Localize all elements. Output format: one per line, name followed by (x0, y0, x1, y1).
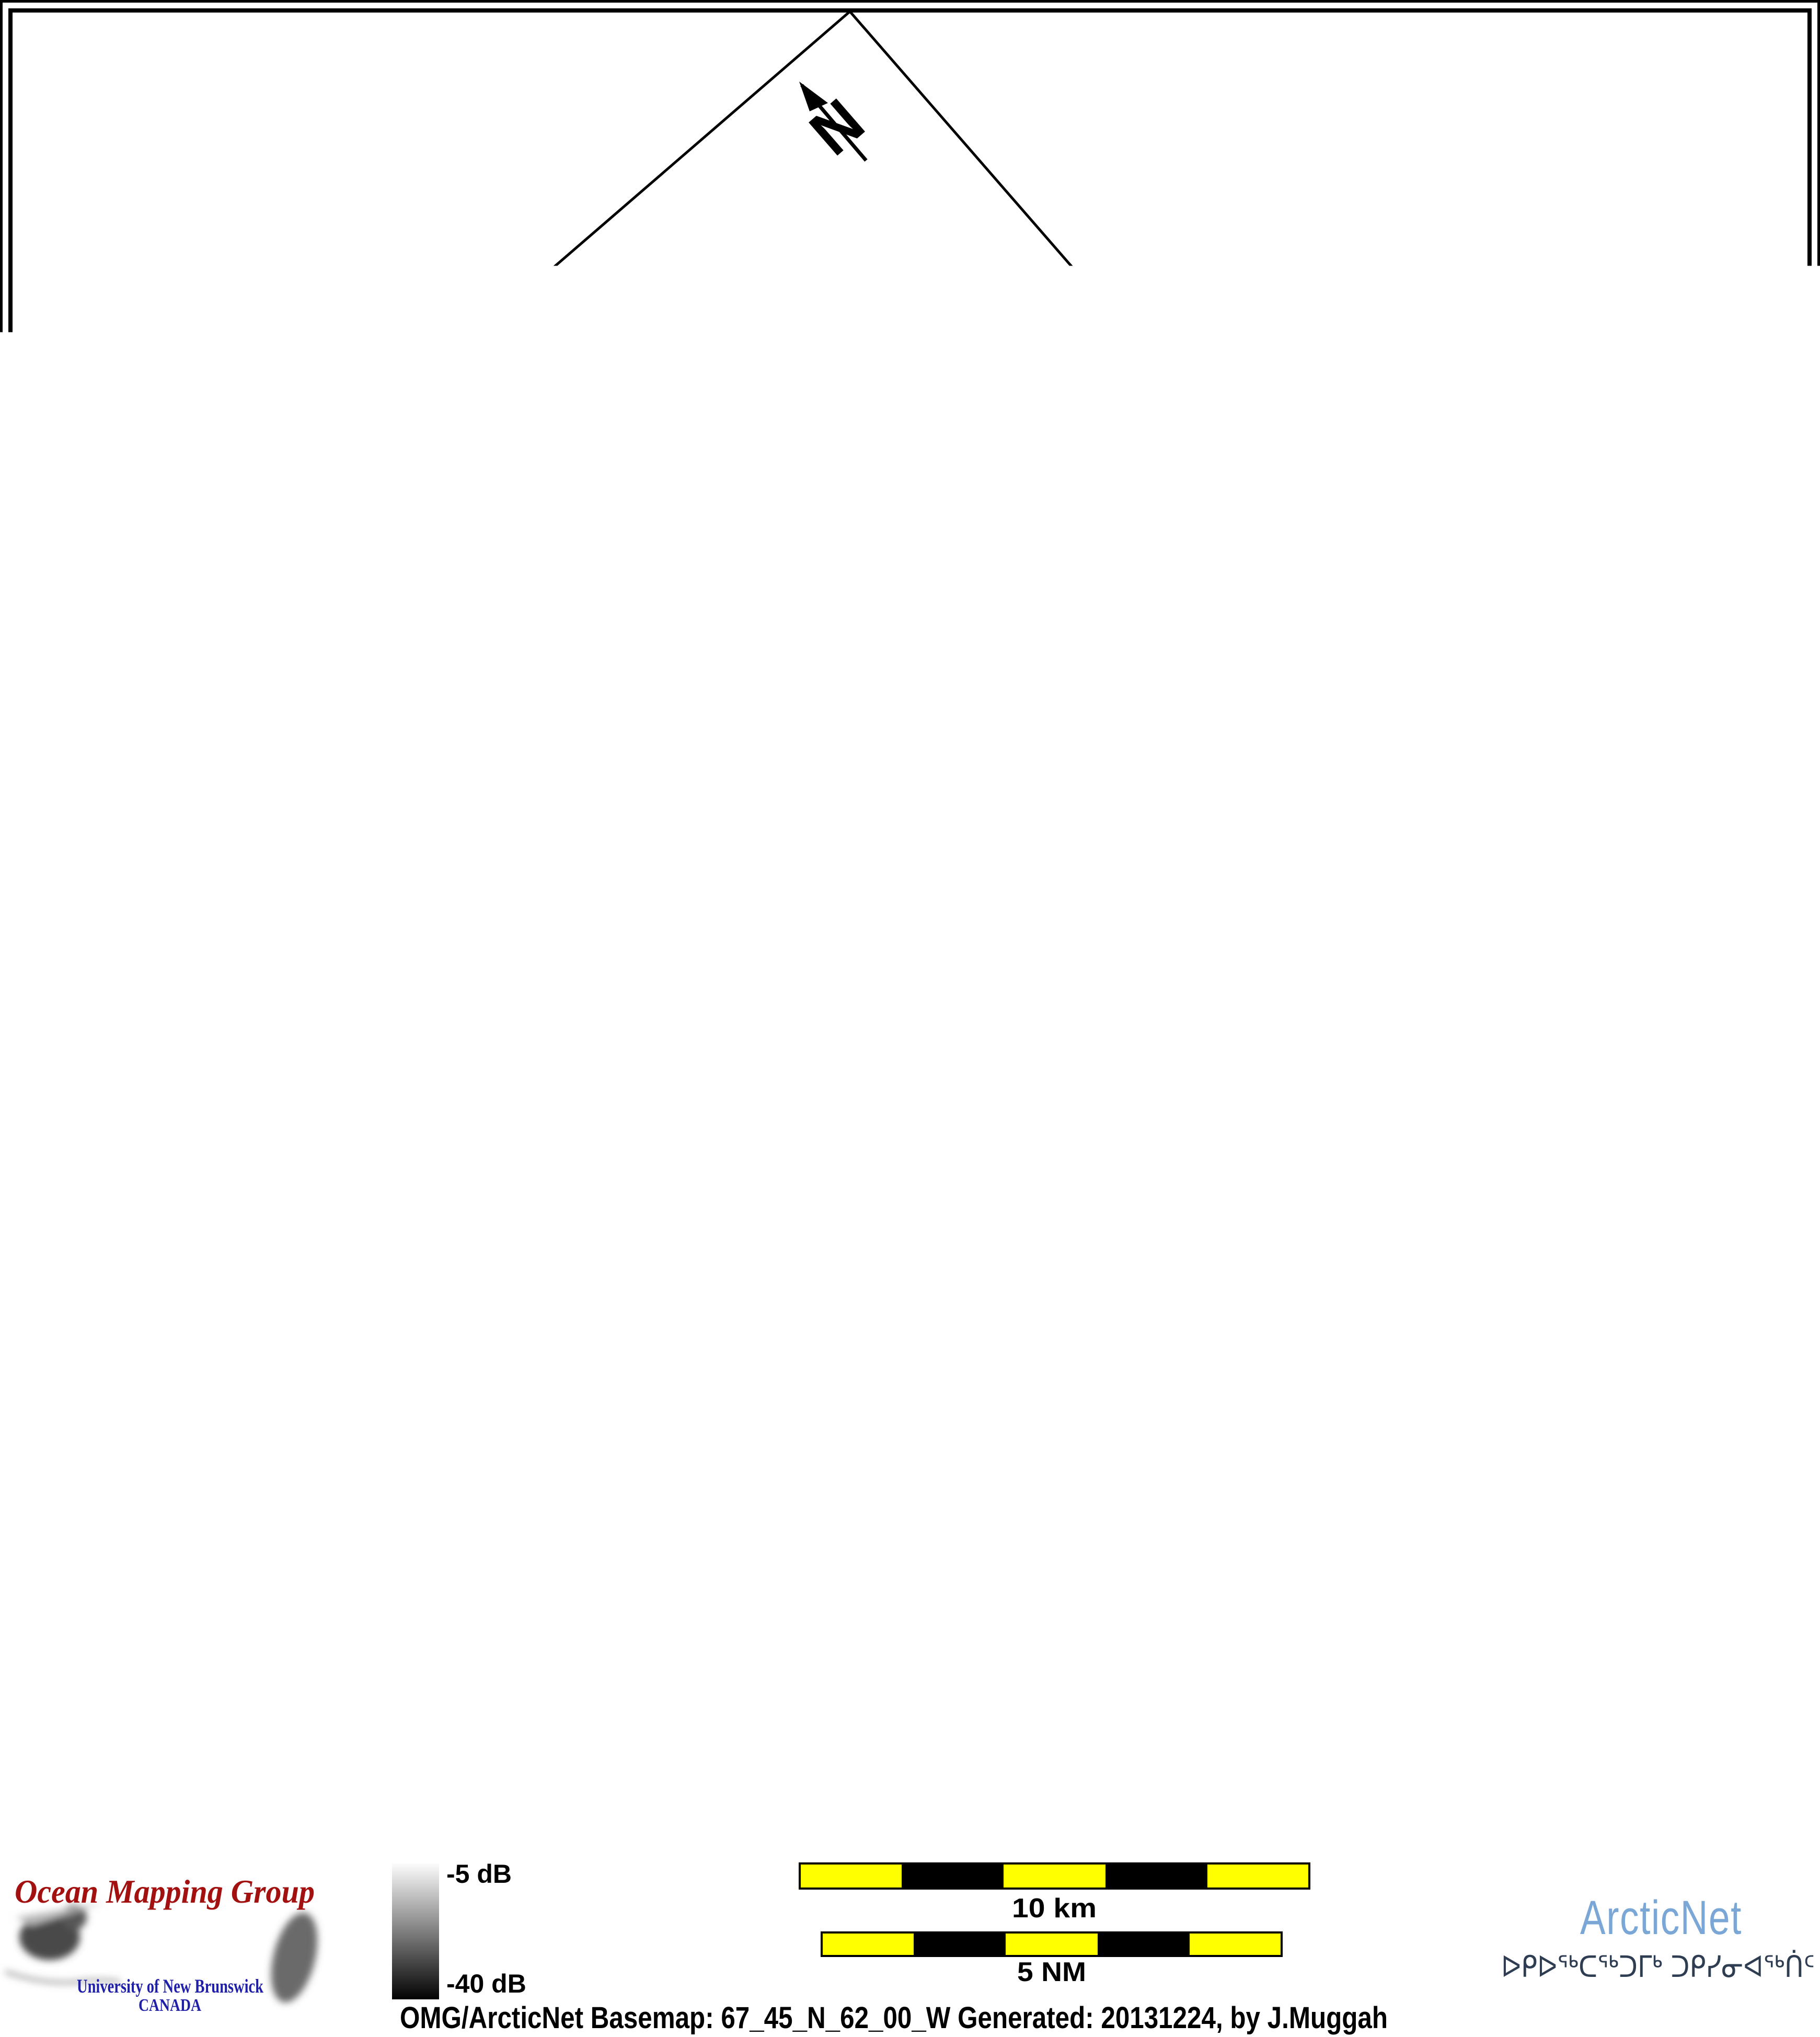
basemap-caption: OMG/ArcticNet Basemap: 67_45_N_62_00_W G… (400, 2001, 1388, 2035)
scalebar-segment (1004, 1863, 1105, 1889)
scalebar-segment (914, 1932, 1006, 1956)
legend-separator (3, 1856, 1817, 1860)
arcticnet-syllabics: ᐅᑭᐅᖅᑕᖅᑐᒥᒃ ᑐᑭᓯᓂᐊᖅᑏᑦ (1501, 1950, 1815, 1984)
scalebar-5nm (822, 1932, 1282, 1956)
scalebar-segment (1207, 1863, 1309, 1889)
scalebar-5nm-label: 5 NM (1017, 1957, 1086, 1987)
scalebar-segment (1006, 1932, 1098, 1956)
scalebar-segment (800, 1863, 902, 1889)
colorbar-gradient (392, 1863, 439, 1999)
scalebar-segment (902, 1863, 1004, 1889)
scalebar-segment (1098, 1932, 1190, 1956)
scalebar-segment (822, 1932, 914, 1956)
scalebar-10km (800, 1863, 1309, 1889)
scalebar-segment (1190, 1932, 1282, 1956)
colorbar-bottom-label: -40 dB (446, 1969, 526, 1998)
survey-circle (708, 426, 923, 640)
colorbar-top-label: -5 dB (446, 1859, 512, 1889)
omg-logo-title: Ocean Mapping Group (15, 1873, 315, 1910)
scalebar-segment (1105, 1863, 1207, 1889)
basemap-figure: N 67° 45' N 62° 00' W 61° 30' W 67° 30' … (0, 0, 1820, 2037)
arcticnet-name: ArcticNet (1580, 1891, 1742, 1944)
omg-logo-subtitle: University of New Brunswick (77, 1976, 263, 1997)
omg-logo-country: CANADA (139, 1996, 201, 2015)
omg-logo: Ocean Mapping Group University of New Br… (3, 1871, 326, 2017)
scalebar-10km-label: 10 km (1012, 1893, 1097, 1924)
